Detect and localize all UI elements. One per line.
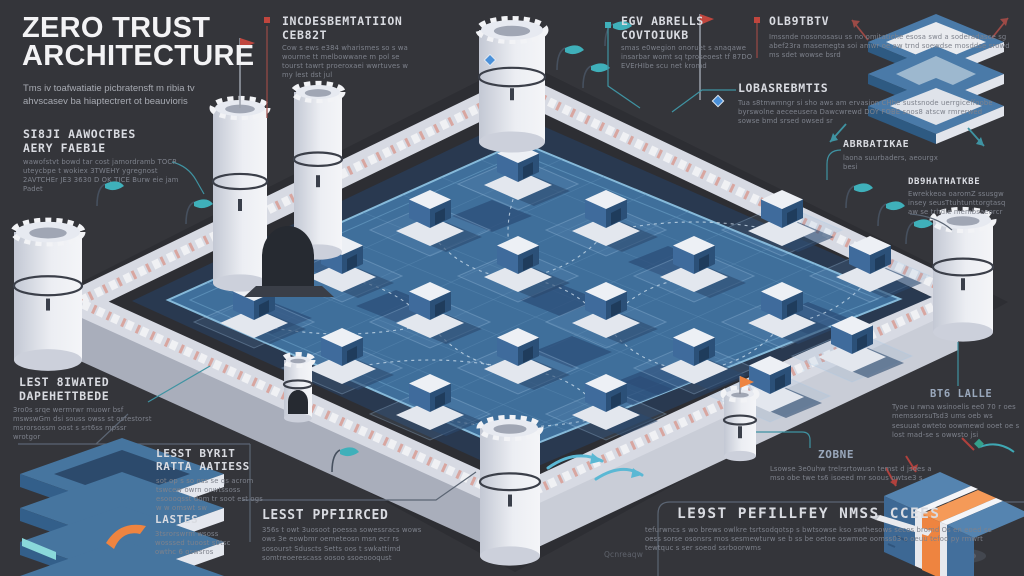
callout-body: 356s t owt 3uosoot poessa sowessracs wow…: [262, 526, 424, 562]
callout-heading: ZOBNE: [818, 449, 938, 462]
infographic-zero-trust: ZERO TRUST ARCHITECTURE Tms iv toafwatia…: [0, 0, 1024, 576]
callout-body: Tyoe u rwna wsinoelis ee0 70 r oes memss…: [892, 403, 1022, 439]
subtitle: Tms iv toafwatiatie picbratensft m ribia…: [23, 82, 228, 109]
callout-heading: RATTA AATIESS: [156, 461, 264, 474]
castle-tower: [480, 418, 540, 565]
callout-log-segments: LOBASREBMTIS Tua s8tmwmngr si sho aws am…: [738, 82, 1006, 126]
callout-heading: COVTOIUKB: [621, 29, 761, 43]
callout-body: laona suurbaders, aeourgx besi: [843, 154, 943, 172]
teal-arrow-icon: [980, 444, 1014, 452]
castle-tower: [724, 389, 756, 461]
callout-body: tefurwncs s wo brews owlkre tsrtsodqotsp…: [645, 526, 1003, 553]
callout-heading: ABRBATIKAE: [843, 139, 943, 151]
callout-least-privileged: LESST PPFIIRCED 356s t owt 3uosoot poess…: [262, 508, 424, 563]
page-title: ZERO TRUST ARCHITECTURE: [22, 14, 254, 70]
callout-body: Cow s ews e384 wharismes so s wa wourme …: [282, 44, 410, 80]
teal-bullet-icon: [605, 22, 611, 28]
callout-heading: DB9HATHATKBE: [908, 177, 1016, 188]
castle-tower: [14, 221, 82, 371]
callout-body: smas e0wegion onoruet s anaqawe insarbar…: [621, 44, 761, 71]
callout-heading: AERY FAEB1E: [23, 142, 181, 156]
callout-segmented: LEST 8IWATED DAPEHETTBEDE 3ro0s srqe wer…: [13, 376, 155, 443]
callout-authentication: DB9HATHATKBE Ewrekkeoa oaromZ ssusgw ins…: [908, 177, 1016, 217]
callout-zone: ZOBNE Lsowse 3e0uhw trelrsrtowusn temst …: [770, 449, 938, 483]
callout-heading: LEST 8IWATED: [19, 376, 155, 390]
pennant-icon: [557, 45, 584, 70]
callout-access-controls: EGV ABRELLS COVTOIUKB smas e0wegion onor…: [621, 15, 761, 71]
footnote: Qcnreaqw: [604, 550, 643, 560]
callout-heading: LESST PPFIIRCED: [262, 508, 424, 523]
callout-heading: LASTES: [155, 514, 240, 527]
castle-tower: [213, 99, 267, 291]
pennant-icon: [846, 183, 873, 208]
title-line-2: ARCHITECTURE: [22, 42, 254, 70]
callout-body: 3tsrorswrm wsoss wosssed tuoost s0tsc ow…: [155, 530, 240, 557]
callout-heading: CEB82T: [282, 29, 410, 43]
callout-implementation: INCDESBEMTATIION CEB82T Cow s ews e384 w…: [282, 15, 410, 81]
callout-heading: OLB9TBTV: [769, 15, 1014, 29]
wall-marker-icon: [712, 95, 723, 106]
callout-least-privilege-access: LE9ST PEFILLFEY NMSS CCEES tefurwncs s w…: [645, 506, 1003, 553]
callout-body: Lsowse 3e0uhw trelrsrtowusn temst d jsoe…: [770, 465, 938, 483]
pennant-icon: [583, 63, 610, 88]
pennant-icon: [906, 219, 933, 244]
callout-body: wawofstvt bowd tar cost jamordramb TOCR …: [23, 158, 181, 194]
castle-tower: [933, 210, 993, 341]
red-bullet-icon: [264, 17, 270, 23]
callout-body: sot op s so oss se qs acrom tswcew owrn …: [156, 477, 264, 513]
callout-btg-lalle: BT6 LALLE Tyoe u rwna wsinoelis ee0 70 r…: [892, 388, 1022, 440]
callout-heading: BT6 LALLE: [930, 388, 1022, 400]
callout-body: Imssnde nosonosasu ss no omitatiche esos…: [769, 33, 1014, 60]
callout-advantages: SI8JI AAWOCTBES AERY FAEB1E wawofstvt bo…: [23, 128, 181, 195]
title-line-1: ZERO TRUST: [22, 14, 254, 42]
callout-lastes: LASTES 3tsrorswrm wsoss wosssed tuoost s…: [155, 514, 240, 557]
castle-tower: [479, 19, 545, 152]
callout-least-data-access: LESST BYR1T RATTA AATIESS sot op s so os…: [156, 448, 264, 513]
pennant-icon: [878, 201, 905, 226]
callout-body: 3ro0s srqe wermrwr muowr bsf mswswGm dsi…: [13, 406, 155, 442]
callout-heading: SI8JI AAWOCTBES: [23, 128, 181, 142]
callout-heading: INCDESBEMTATIION: [282, 15, 410, 29]
callout-abraatkae: ABRBATIKAE laona suurbaders, aeourgx bes…: [843, 139, 943, 172]
callout-heading: LOBASREBMTIS: [738, 82, 1006, 96]
callout-objective: OLB9TBTV Imssnde nosonosasu ss no omitat…: [769, 15, 1014, 60]
callout-body: Tua s8tmwmngr si sho aws am ervasion CHh…: [738, 99, 1006, 126]
callout-heading: EGV ABRELLS: [621, 15, 761, 29]
callout-heading: DAPEHETTBEDE: [19, 390, 155, 404]
callout-heading: LE9ST PEFILLFEY NMSS CCEES: [677, 506, 1003, 523]
callout-body: Ewrekkeoa oaromZ ssusgw insey seusTtuhtu…: [908, 190, 1016, 217]
